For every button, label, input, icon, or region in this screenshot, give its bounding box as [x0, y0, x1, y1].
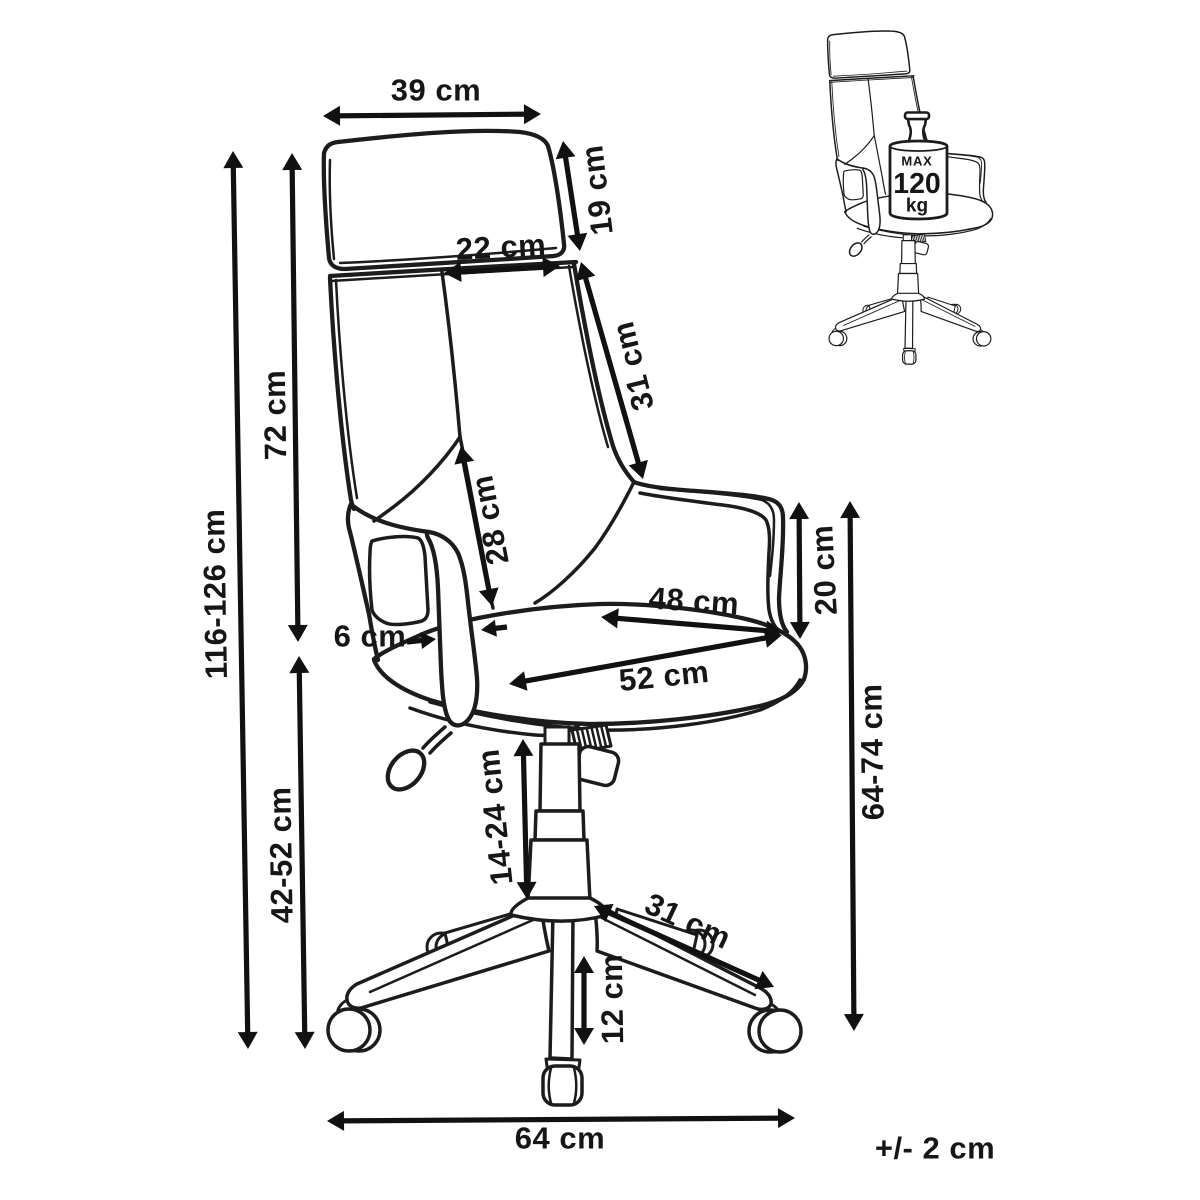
svg-text:kg: kg — [906, 196, 928, 217]
svg-text:MAX: MAX — [901, 154, 932, 169]
svg-text:39 cm: 39 cm — [391, 73, 481, 108]
svg-text:116-126 cm: 116-126 cm — [196, 508, 234, 679]
svg-text:48 cm: 48 cm — [648, 580, 741, 621]
svg-text:64-74 cm: 64-74 cm — [853, 683, 890, 820]
svg-text:72 cm: 72 cm — [257, 369, 294, 460]
svg-text:64 cm: 64 cm — [515, 1121, 605, 1156]
svg-text:42-52 cm: 42-52 cm — [262, 786, 299, 923]
svg-text:22 cm: 22 cm — [455, 227, 547, 267]
svg-text:12 cm: 12 cm — [594, 953, 631, 1044]
svg-text:20 cm: 20 cm — [804, 524, 844, 616]
svg-text:+/- 2 cm: +/- 2 cm — [875, 1131, 995, 1166]
svg-text:6 cm: 6 cm — [334, 619, 407, 654]
